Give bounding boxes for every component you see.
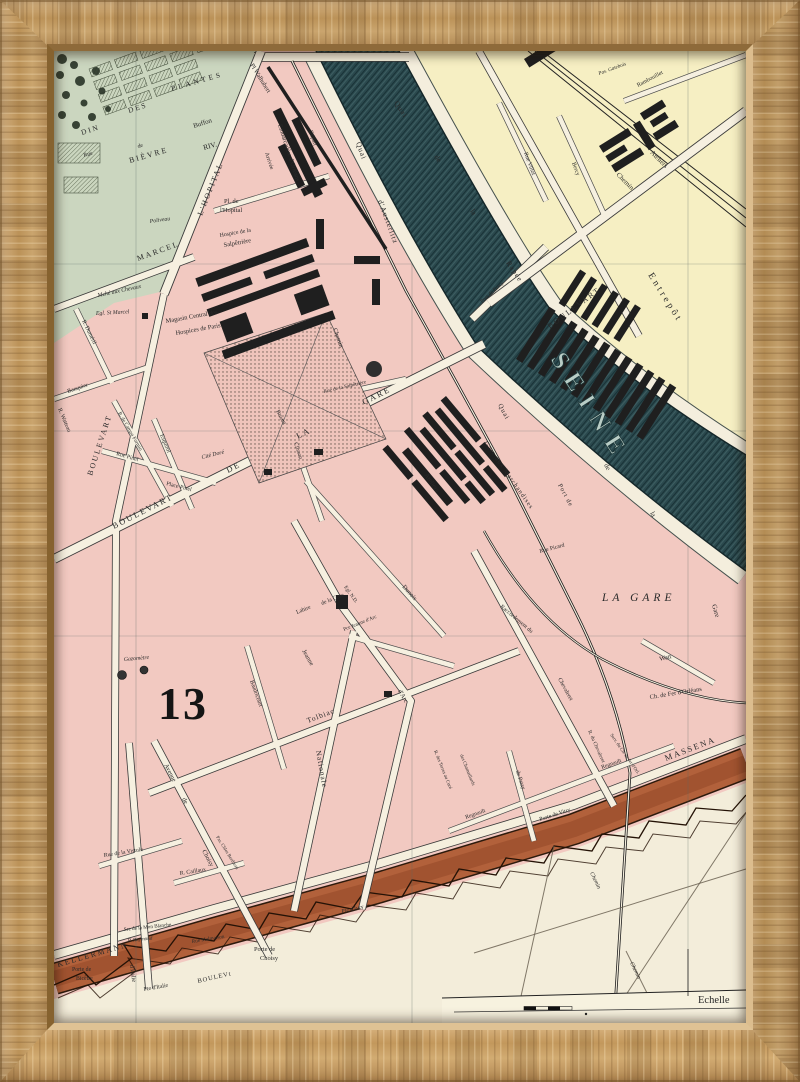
framed-map-photo: DIN DES PLANTES Rue de Buffon BIÈVRE RIV… (0, 0, 800, 1082)
label-arrondissement-13: 13 (158, 678, 208, 729)
label-porte-bicetre-2: Bicêtre (76, 976, 93, 982)
label-l-hopital: l'Hopital (220, 207, 242, 214)
label-porte-bicetre-1: Porte de (72, 967, 92, 973)
frame-bar-left (0, 0, 54, 1082)
label-echelle: Echelle (698, 995, 730, 1006)
label-porte-choisy-1: Porte de (254, 946, 275, 953)
label-porte-choisy-2: Choisy (260, 955, 279, 962)
frame-bar-bottom (0, 1022, 800, 1082)
paris-13th-map-print: DIN DES PLANTES Rue de Buffon BIÈVRE RIV… (54, 51, 746, 1023)
salpetriere-dome (366, 361, 382, 377)
label-pl-de: Pl. de (224, 198, 239, 205)
frame-bar-right (745, 0, 800, 1082)
label-la-gare: LA GARE (601, 592, 675, 604)
